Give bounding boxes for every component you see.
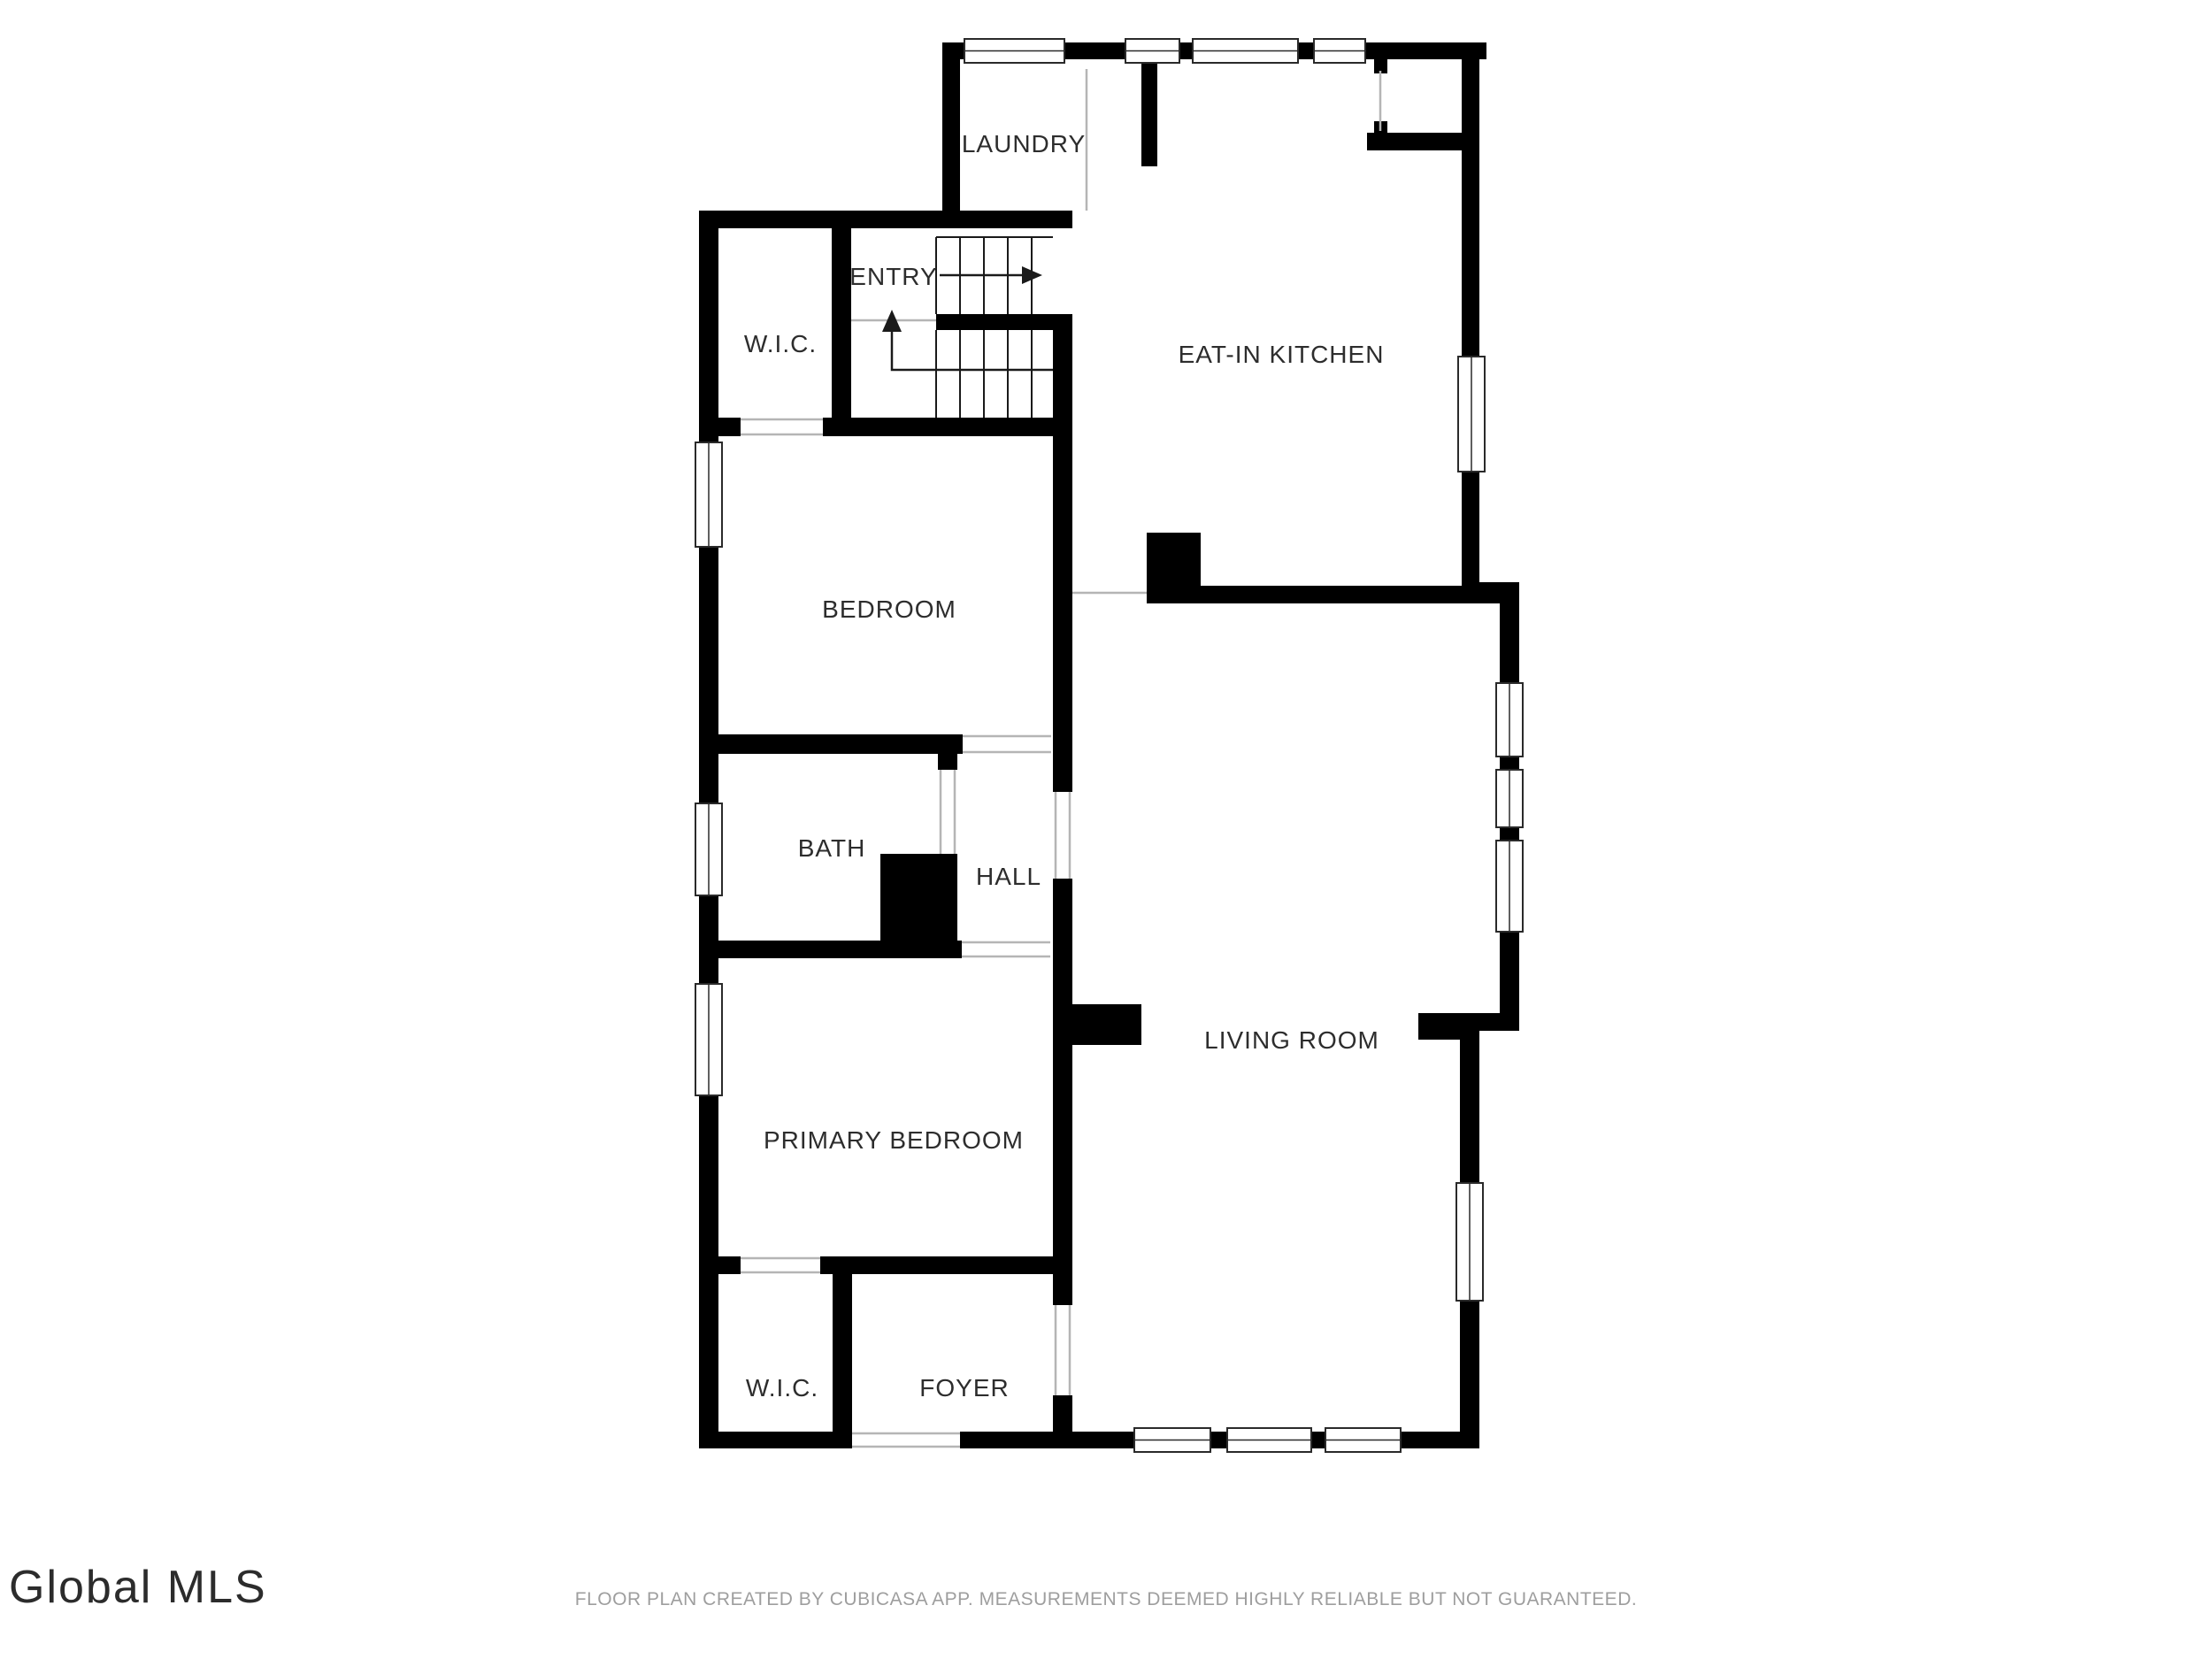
wall-segment [1053, 879, 1072, 1305]
wall-segment [1462, 59, 1479, 357]
wall-segment [1367, 133, 1479, 150]
wall-segment [1298, 42, 1314, 59]
room-label-bath: BATH [798, 834, 866, 862]
wall-segment [1053, 314, 1072, 792]
wall-segment [1460, 1031, 1479, 1183]
wall-segment [699, 547, 718, 803]
wall-segment [1500, 932, 1519, 1013]
room-label-bedroom: BEDROOM [822, 595, 956, 623]
wall-segment [718, 734, 963, 754]
wall-segment [699, 941, 962, 958]
wall-segment [1147, 533, 1201, 603]
wall-segment [699, 418, 741, 436]
wall-segment [699, 1432, 852, 1448]
wall-segment [833, 1274, 852, 1433]
room-label-wic-bottom: W.I.C. [746, 1374, 818, 1402]
wall-segment [699, 895, 718, 984]
wall-segment [1500, 757, 1519, 770]
room-label-foyer: FOYER [919, 1374, 1009, 1402]
wall-segment [1210, 1432, 1227, 1448]
wall-segment [1462, 582, 1519, 603]
wall-segment [1064, 42, 1125, 59]
wall-segment [832, 211, 851, 436]
wall-segment [1141, 59, 1157, 166]
wall-segment [1365, 42, 1486, 59]
room-label-laundry: LAUNDRY [962, 130, 1086, 157]
walls-group [699, 42, 1519, 1448]
wall-segment [938, 754, 957, 770]
room-label-hall: HALL [976, 863, 1041, 890]
footer-disclaimer: FLOOR PLAN CREATED BY CUBICASA APP. MEAS… [0, 1589, 2212, 1610]
wall-segment [1462, 472, 1479, 586]
room-label-primary-bedroom: PRIMARY BEDROOM [764, 1126, 1024, 1154]
wall-segment [1460, 1301, 1479, 1448]
wall-segment [1500, 827, 1519, 841]
stair-direction-arrow [892, 329, 1053, 370]
floor-plan-page: LAUNDRYENTRYW.I.C.EAT-IN KITCHENBEDROOMB… [0, 0, 2212, 1659]
wall-segment [942, 211, 1072, 228]
wall-segment [960, 1432, 1134, 1448]
wall-segment [699, 1256, 741, 1274]
wall-segment [1311, 1432, 1325, 1448]
floor-plan-drawing: LAUNDRYENTRYW.I.C.EAT-IN KITCHENBEDROOMB… [0, 0, 2212, 1659]
wall-segment [699, 228, 718, 442]
room-label-entry: ENTRY [849, 263, 937, 290]
wall-segment [1179, 42, 1193, 59]
wall-segment [1418, 1013, 1462, 1040]
room-label-living-room: LIVING ROOM [1204, 1026, 1379, 1054]
wall-segment [820, 1256, 1056, 1274]
wall-segment [1201, 586, 1462, 603]
wall-segment [823, 418, 1068, 436]
wall-segment [699, 211, 942, 228]
wall-segment [936, 314, 1068, 330]
room-label-wic-top: W.I.C. [744, 330, 817, 357]
wall-segment [1066, 1004, 1141, 1045]
room-label-eat-in-kitchen: EAT-IN KITCHEN [1179, 341, 1385, 368]
wall-segment [942, 42, 960, 228]
